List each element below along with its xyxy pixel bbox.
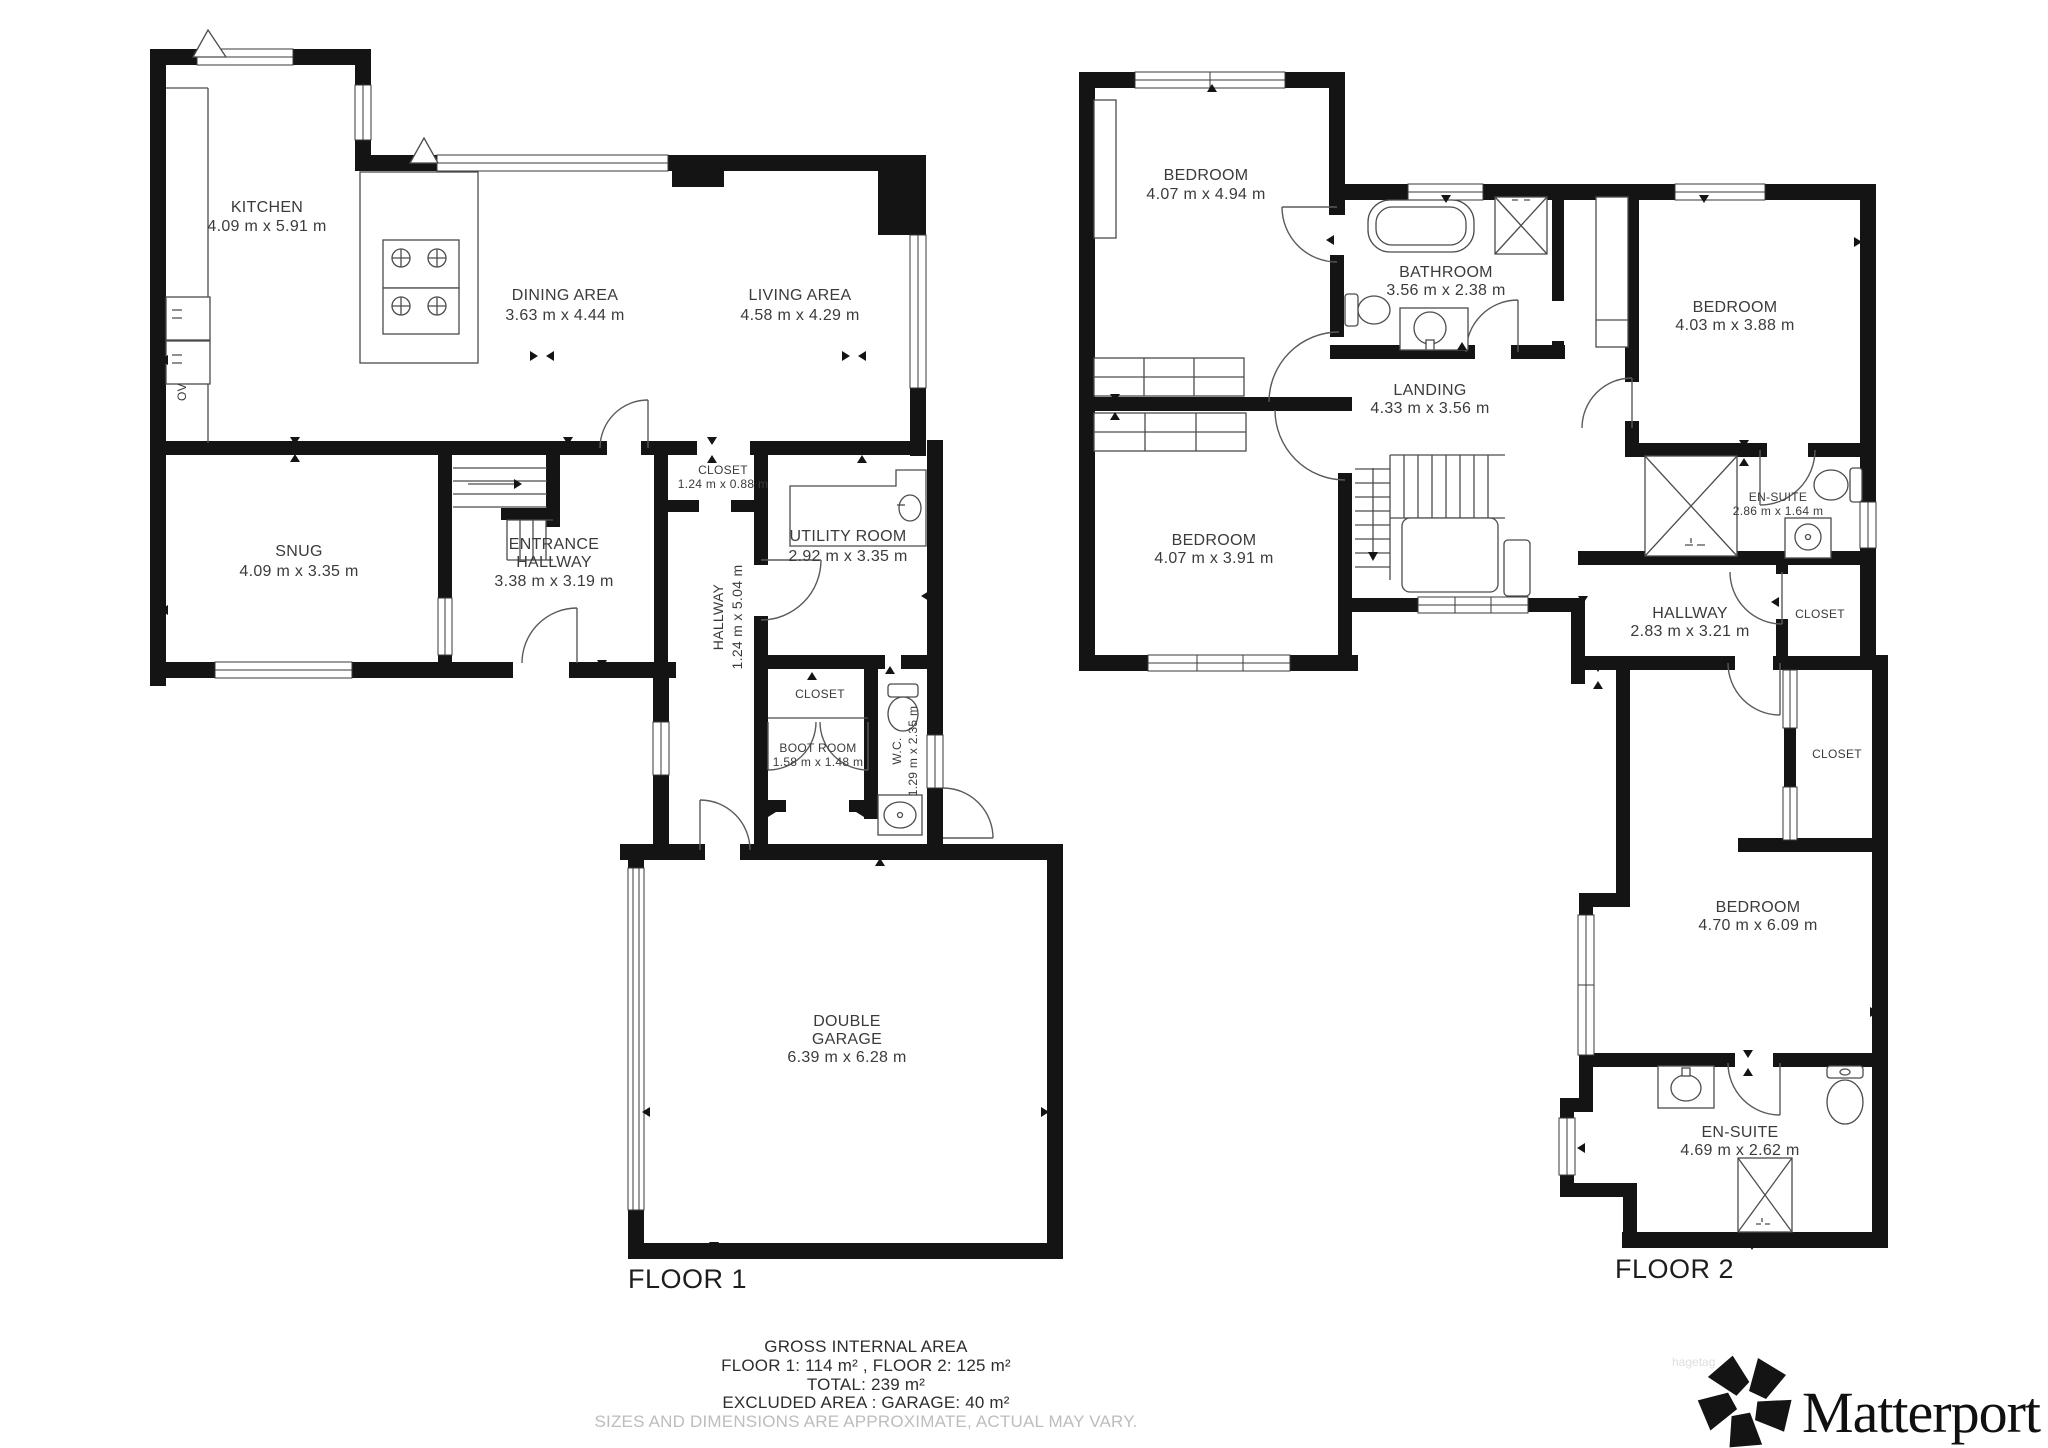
- room-dims-bootroom: 1.58 m x 1.48 m: [773, 755, 864, 769]
- room-label-living: LIVING AREA: [749, 287, 852, 304]
- room-label-bathroom: BATHROOM: [1399, 264, 1493, 281]
- footer-line-floors: FLOOR 1: 114 m² , FLOOR 2: 125 m²: [721, 1356, 1011, 1375]
- room-label-garage-2: GARAGE: [812, 1031, 882, 1048]
- room-dims-ensuite2: 4.69 m x 2.62 m: [1680, 1142, 1799, 1159]
- footer-line-excluded: EXCLUDED AREA : GARAGE: 40 m²: [722, 1393, 1009, 1412]
- floor2-plan: BEDROOM 4.07 m x 4.94 m BATHROOM 3.56 m …: [1087, 72, 1880, 1284]
- sink-icon: [1400, 308, 1468, 350]
- window: [1578, 915, 1594, 1055]
- room-label-closet-top: CLOSET: [698, 463, 748, 477]
- window: [355, 85, 371, 140]
- room-dims-closet-top: 1.24 m x 0.88 m: [678, 477, 769, 491]
- watermark-text: hagetag: [1672, 1355, 1715, 1369]
- room-label-kitchen: KITCHEN: [231, 199, 303, 216]
- room-label-hallway: HALLWAY: [710, 583, 726, 650]
- window: [1675, 184, 1765, 200]
- room-label-bedroom2: BEDROOM: [1693, 299, 1778, 316]
- shower-icon: [1495, 197, 1547, 254]
- floorplan-svg: KITCHEN 4.09 m x 5.91 m DINING AREA 3.63…: [0, 0, 2048, 1448]
- door-arc-ensuite2: [1728, 1063, 1780, 1115]
- stairs-direction-arrow: [1368, 552, 1378, 561]
- matterport-branding: hagetag Matterport: [1672, 1350, 2041, 1448]
- window: [437, 155, 668, 171]
- room-dims-ensuite1: 2.86 m x 1.64 m: [1733, 504, 1824, 518]
- window: [1860, 502, 1876, 548]
- room-label-closet-mid: CLOSET: [795, 687, 845, 701]
- toilet-icon: [1345, 294, 1390, 326]
- room-dims-bedroom4: 4.70 m x 6.09 m: [1698, 917, 1817, 934]
- room-dims-bathroom: 3.56 m x 2.38 m: [1386, 282, 1505, 299]
- floor1-plan: KITCHEN 4.09 m x 5.91 m DINING AREA 3.63…: [158, 30, 1055, 1294]
- floorplan-page: KITCHEN 4.09 m x 5.91 m DINING AREA 3.63…: [0, 0, 2048, 1448]
- room-dims-kitchen: 4.09 m x 5.91 m: [207, 218, 326, 235]
- room-dims-dining: 3.63 m x 4.44 m: [505, 307, 624, 324]
- door-arc-bedroom3: [1275, 410, 1345, 480]
- room-label-bootroom: BOOT ROOM: [779, 741, 856, 755]
- room-dims-hallway2: 2.83 m x 3.21 m: [1630, 623, 1749, 640]
- window: [215, 662, 352, 678]
- window: [1148, 655, 1290, 671]
- window: [1135, 72, 1285, 88]
- door-arc-rear-exterior: [943, 788, 993, 838]
- room-label-ensuite2: EN-SUITE: [1701, 1124, 1778, 1141]
- bathtub-icon: [1368, 200, 1474, 252]
- footer-disclaimer: SIZES AND DIMENSIONS ARE APPROXIMATE, AC…: [595, 1412, 1138, 1431]
- room-label-bedroom4: BEDROOM: [1716, 899, 1801, 916]
- room-label-closet-b: CLOSET: [1812, 747, 1862, 761]
- window: [1559, 1118, 1575, 1175]
- room-label-ensuite1: EN-SUITE: [1749, 490, 1807, 504]
- room-dims-snug: 4.09 m x 3.35 m: [239, 563, 358, 580]
- room-label-utility: UTILITY ROOM: [789, 528, 906, 545]
- door-arc-garage: [700, 800, 750, 850]
- shower-icon: [1645, 456, 1737, 556]
- room-label-hallway2: HALLWAY: [1652, 605, 1728, 622]
- room-label-entrance-1: ENTRANCE: [509, 536, 599, 553]
- room-label-landing: LANDING: [1393, 382, 1466, 399]
- door-arc-dining: [600, 400, 648, 448]
- sink-icon: [878, 795, 922, 835]
- window: [653, 722, 669, 775]
- wall-bump-living: [878, 163, 924, 235]
- room-label-bedroom1: BEDROOM: [1164, 167, 1249, 184]
- cupboard-icon: [1596, 197, 1628, 347]
- floor2-stairs-icon: [1355, 455, 1530, 596]
- footer-line-gross: GROSS INTERNAL AREA: [764, 1337, 968, 1356]
- room-dims-bedroom1: 4.07 m x 4.94 m: [1146, 186, 1265, 203]
- wardrobe-icon: [1094, 100, 1116, 238]
- door-arc-landing-a: [1269, 332, 1339, 402]
- bay-window-triangle: [410, 138, 438, 163]
- room-label-closet-a: CLOSET: [1795, 607, 1845, 621]
- room-label-garage-1: DOUBLE: [813, 1013, 881, 1030]
- floor2-title: FLOOR 2: [1615, 1254, 1734, 1284]
- room-dims-hallway: 1.24 m x 5.04 m: [729, 565, 745, 670]
- room-label-dining: DINING AREA: [512, 287, 618, 304]
- kitchen-island-icon: [360, 172, 478, 363]
- sink-icon: [1785, 518, 1831, 558]
- toilet-icon: [1814, 468, 1862, 502]
- door-arc-bedroom1: [1282, 207, 1337, 262]
- floor2-interior-walls: [1087, 192, 1880, 1240]
- room-dims-wc: 1.29 m x 2.35 m: [906, 706, 920, 797]
- room-dims-utility: 2.92 m x 3.35 m: [788, 548, 907, 565]
- window: [910, 235, 926, 388]
- door-arc-front-door: [522, 608, 577, 663]
- window: [927, 735, 943, 788]
- room-dims-landing: 4.33 m x 3.56 m: [1370, 400, 1489, 417]
- room-label-bedroom3: BEDROOM: [1172, 532, 1257, 549]
- matterport-wordmark: Matterport: [1802, 1380, 2041, 1445]
- room-label-snug: SNUG: [275, 543, 322, 560]
- room-label-entrance-2: HALLWAY: [516, 554, 592, 571]
- oven-label: OV: [175, 383, 189, 401]
- door-arc-closet-a: [1730, 572, 1782, 624]
- room-dims-bedroom3: 4.07 m x 3.91 m: [1154, 550, 1273, 567]
- footer-area-summary: GROSS INTERNAL AREA FLOOR 1: 114 m² , FL…: [595, 1337, 1138, 1431]
- sink-icon: [899, 495, 921, 521]
- wall-bump-dining: [672, 155, 724, 187]
- window: [438, 598, 452, 655]
- footer-line-total: TOTAL: 239 m²: [807, 1375, 925, 1394]
- stairs-banister: [1402, 518, 1498, 592]
- window: [1418, 597, 1528, 613]
- garage-door: [628, 868, 644, 1210]
- room-dims-entrance: 3.38 m x 3.19 m: [494, 573, 613, 590]
- room-label-wc: W.C.: [890, 737, 904, 764]
- sink-icon: [1658, 1066, 1714, 1108]
- stairs-banister: [1504, 540, 1530, 596]
- shower-icon: [1738, 1158, 1792, 1232]
- room-dims-garage: 6.39 m x 6.28 m: [787, 1049, 906, 1066]
- door-arc-utility: [761, 560, 821, 620]
- door-arc-bathroom: [1466, 300, 1518, 352]
- bay-window-triangle: [193, 30, 226, 57]
- floor1-title: FLOOR 1: [628, 1264, 747, 1294]
- room-dims-bedroom2: 4.03 m x 3.88 m: [1675, 317, 1794, 334]
- room-dims-living: 4.58 m x 4.29 m: [740, 307, 859, 324]
- toilet-icon: [1827, 1066, 1863, 1124]
- wardrobe-icon: [1094, 358, 1244, 396]
- door-arc-bedroom4: [1728, 663, 1780, 715]
- door-arc-bedroom2: [1582, 378, 1632, 428]
